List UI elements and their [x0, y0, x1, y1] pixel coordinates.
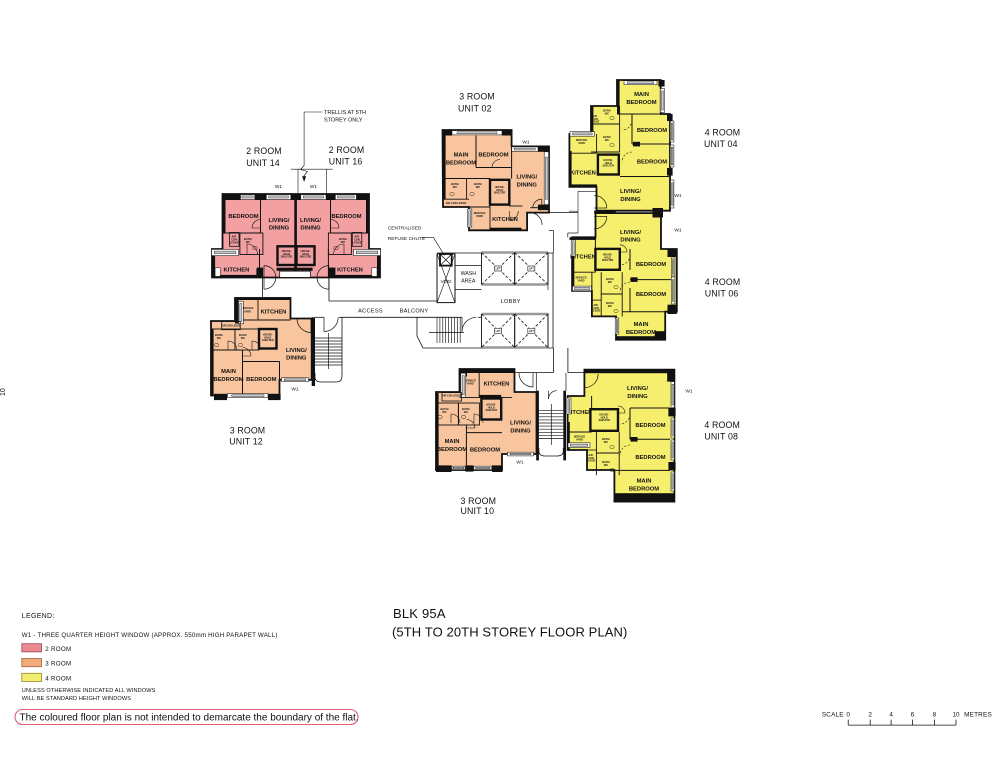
svg-text:BEDROOM: BEDROOM [437, 447, 467, 453]
svg-text:3 ROOM: 3 ROOM [45, 661, 71, 668]
svg-text:WASH: WASH [461, 271, 477, 277]
svg-text:UNIT 10: UNIT 10 [461, 506, 495, 516]
svg-text:LEDGE: LEDGE [591, 121, 600, 124]
svg-text:BLK 95A: BLK 95A [393, 606, 446, 621]
svg-text:KITCHEN: KITCHEN [337, 267, 363, 273]
svg-text:2 ROOM: 2 ROOM [329, 145, 365, 155]
svg-text:LIVING/: LIVING/ [516, 175, 537, 181]
svg-text:WC: WC [608, 280, 613, 284]
svg-text:WC: WC [241, 336, 246, 340]
svg-text:WC: WC [604, 463, 609, 467]
svg-text:BEDROOM: BEDROOM [470, 447, 500, 453]
svg-text:KITCHEN: KITCHEN [261, 310, 287, 316]
svg-text:LIVING/: LIVING/ [627, 386, 648, 392]
svg-text:3 ROOM: 3 ROOM [459, 91, 495, 101]
svg-text:LEDGE: LEDGE [587, 460, 596, 463]
svg-text:ACCESS: ACCESS [358, 308, 383, 314]
svg-text:UNIT 02: UNIT 02 [458, 103, 492, 113]
svg-text:2 ROOM: 2 ROOM [45, 646, 71, 653]
svg-text:WC: WC [464, 410, 469, 414]
svg-text:BEDROOM: BEDROOM [636, 262, 666, 268]
svg-text:BEDROOM: BEDROOM [626, 100, 656, 106]
svg-text:WC: WC [476, 185, 481, 189]
svg-text:W1: W1 [685, 389, 693, 395]
svg-text:4: 4 [889, 711, 893, 718]
svg-text:UNIT 16: UNIT 16 [329, 156, 363, 166]
svg-text:2 ROOM: 2 ROOM [246, 146, 282, 156]
svg-text:YARD: YARD [244, 309, 251, 313]
svg-text:BEDROOM: BEDROOM [213, 377, 243, 383]
svg-text:BEDROOM: BEDROOM [637, 160, 667, 166]
svg-text:DINING: DINING [286, 356, 307, 362]
svg-text:STOREY ONLY: STOREY ONLY [324, 118, 363, 124]
svg-text:SHELTER: SHELTER [602, 259, 614, 262]
svg-text:BEDROOM: BEDROOM [635, 423, 665, 429]
svg-text:4 ROOM: 4 ROOM [705, 277, 741, 287]
svg-text:UNIT 08: UNIT 08 [704, 431, 738, 441]
svg-text:AIR-CON LEDGE: AIR-CON LEDGE [446, 201, 467, 205]
svg-text:BEDROOM: BEDROOM [626, 330, 656, 336]
svg-text:W1: W1 [275, 184, 283, 190]
svg-text:METRES: METRES [964, 711, 992, 718]
svg-text:DINING: DINING [627, 394, 648, 400]
svg-text:DINING: DINING [517, 183, 538, 189]
svg-text:YARD: YARD [466, 382, 473, 386]
svg-text:WC: WC [608, 304, 613, 308]
svg-text:WC: WC [442, 410, 447, 414]
svg-text:YARD: YARD [476, 214, 483, 218]
svg-text:UNIT 12: UNIT 12 [229, 436, 263, 446]
svg-text:4 ROOM: 4 ROOM [705, 127, 741, 137]
svg-text:CENTRALISED: CENTRALISED [388, 226, 422, 232]
svg-text:AIR-CON LEDGE: AIR-CON LEDGE [221, 324, 241, 327]
svg-text:BEDROOM: BEDROOM [228, 214, 258, 220]
svg-text:BEDROOM: BEDROOM [635, 455, 665, 461]
svg-text:BALCONY: BALCONY [400, 308, 429, 314]
svg-text:LIFT: LIFT [529, 268, 535, 271]
svg-text:MAIN: MAIN [634, 322, 649, 328]
svg-text:YARD: YARD [576, 438, 583, 442]
svg-text:WC: WC [453, 185, 458, 189]
svg-text:(5TH TO 20TH STOREY FLOOR PLAN: (5TH TO 20TH STOREY FLOOR PLAN) [392, 625, 627, 640]
svg-text:SCALE: SCALE [822, 711, 844, 718]
svg-text:DINING: DINING [620, 238, 641, 244]
svg-text:W1: W1 [674, 193, 682, 199]
svg-text:AREA: AREA [461, 279, 476, 285]
svg-text:YARD: YARD [577, 279, 584, 283]
svg-text:SHELTER: SHELTER [494, 192, 506, 195]
svg-text:LIFT: LIFT [529, 330, 535, 333]
svg-text:6: 6 [911, 711, 915, 718]
svg-text:TRELLIS AT 5TH: TRELLIS AT 5TH [324, 110, 366, 116]
svg-text:UNIT 06: UNIT 06 [705, 289, 739, 299]
svg-text:WILL BE STANDARD HEIGHT WINDOW: WILL BE STANDARD HEIGHT WINDOWS [22, 696, 131, 702]
svg-text:3 ROOM: 3 ROOM [230, 425, 266, 435]
svg-text:4 ROOM: 4 ROOM [704, 420, 740, 430]
svg-text:VOID: VOID [441, 279, 452, 284]
svg-text:KITCHEN: KITCHEN [224, 267, 250, 273]
svg-text:W1: W1 [291, 387, 299, 393]
svg-text:The coloured floor plan is not: The coloured floor plan is not intended … [20, 712, 359, 723]
svg-text:W1: W1 [516, 460, 524, 466]
svg-text:DINING: DINING [300, 226, 321, 232]
svg-text:SHELTER: SHELTER [262, 339, 274, 342]
svg-text:MAIN: MAIN [637, 479, 652, 485]
svg-text:MAIN: MAIN [445, 439, 460, 445]
svg-text:LIVING/: LIVING/ [269, 218, 290, 224]
svg-text:W1: W1 [674, 228, 682, 234]
svg-text:BEDROOM: BEDROOM [446, 160, 476, 166]
svg-text:AIR-CON LEDGE: AIR-CON LEDGE [442, 395, 462, 398]
svg-text:2: 2 [868, 711, 872, 718]
svg-text:BEDROOM: BEDROOM [629, 486, 659, 492]
svg-text:LOBBY: LOBBY [501, 299, 521, 305]
svg-text:4 ROOM: 4 ROOM [45, 675, 71, 682]
svg-text:MAIN: MAIN [221, 369, 236, 375]
svg-text:LEGEND:: LEGEND: [22, 613, 55, 620]
svg-text:WC: WC [605, 112, 610, 116]
svg-text:SHELTER: SHELTER [300, 256, 312, 259]
svg-text:10: 10 [0, 388, 7, 396]
svg-text:UNIT 04: UNIT 04 [704, 139, 738, 149]
svg-text:SHELTER: SHELTER [486, 409, 498, 412]
svg-text:UNIT 14: UNIT 14 [246, 158, 280, 168]
svg-text:SHELTER: SHELTER [598, 419, 610, 422]
svg-text:WC: WC [341, 240, 346, 244]
svg-text:LEDGE: LEDGE [230, 240, 239, 244]
svg-text:DINING: DINING [620, 197, 641, 203]
svg-text:3 ROOM: 3 ROOM [461, 496, 497, 506]
svg-text:WC: WC [246, 240, 251, 244]
svg-text:0: 0 [846, 711, 850, 718]
svg-text:UNLESS OTHERWISE INDICATED ALL: UNLESS OTHERWISE INDICATED ALL WINDOWS [22, 688, 156, 694]
svg-text:WC: WC [604, 440, 609, 444]
svg-text:10: 10 [952, 711, 960, 718]
svg-text:WC: WC [605, 138, 610, 142]
svg-text:W1: W1 [310, 184, 318, 190]
svg-text:BEDROOM: BEDROOM [637, 128, 667, 134]
svg-text:MAIN: MAIN [634, 92, 649, 98]
svg-text:DINING: DINING [269, 226, 290, 232]
svg-text:SHELTER: SHELTER [281, 256, 293, 259]
svg-text:LIFT: LIFT [496, 268, 502, 271]
svg-text:KITCHEN: KITCHEN [570, 171, 596, 177]
svg-text:BEDROOM: BEDROOM [636, 292, 666, 298]
svg-text:DINING: DINING [510, 428, 531, 434]
svg-text:BEDROOM: BEDROOM [331, 214, 361, 220]
svg-text:LIVING/: LIVING/ [286, 348, 307, 354]
svg-text:8: 8 [933, 711, 937, 718]
svg-text:LIVING/: LIVING/ [300, 218, 321, 224]
svg-text:BEDROOM: BEDROOM [246, 377, 276, 383]
svg-text:LIVING/: LIVING/ [620, 230, 641, 236]
svg-text:KITCHEN: KITCHEN [492, 217, 518, 223]
svg-text:LIVING/: LIVING/ [620, 189, 641, 195]
svg-text:SHELTER: SHELTER [603, 165, 615, 168]
svg-text:LIVING/: LIVING/ [510, 421, 531, 427]
svg-text:LEDGE: LEDGE [353, 240, 362, 244]
svg-text:LEDGE: LEDGE [592, 310, 601, 313]
svg-text:W1 - THREE QUARTER HEIGHT WI: W1 - THREE QUARTER HEIGHT WINDOW (APPROX… [22, 632, 278, 639]
svg-text:YARD: YARD [578, 141, 585, 145]
svg-text:W1: W1 [522, 140, 530, 146]
svg-text:WC: WC [217, 336, 222, 340]
svg-text:REFUSE CHUTE: REFUSE CHUTE [388, 236, 425, 242]
svg-text:KITCHEN: KITCHEN [484, 381, 510, 387]
svg-text:MAIN: MAIN [454, 153, 469, 159]
svg-text:LIFT: LIFT [496, 330, 502, 333]
svg-text:BEDROOM: BEDROOM [478, 153, 508, 159]
